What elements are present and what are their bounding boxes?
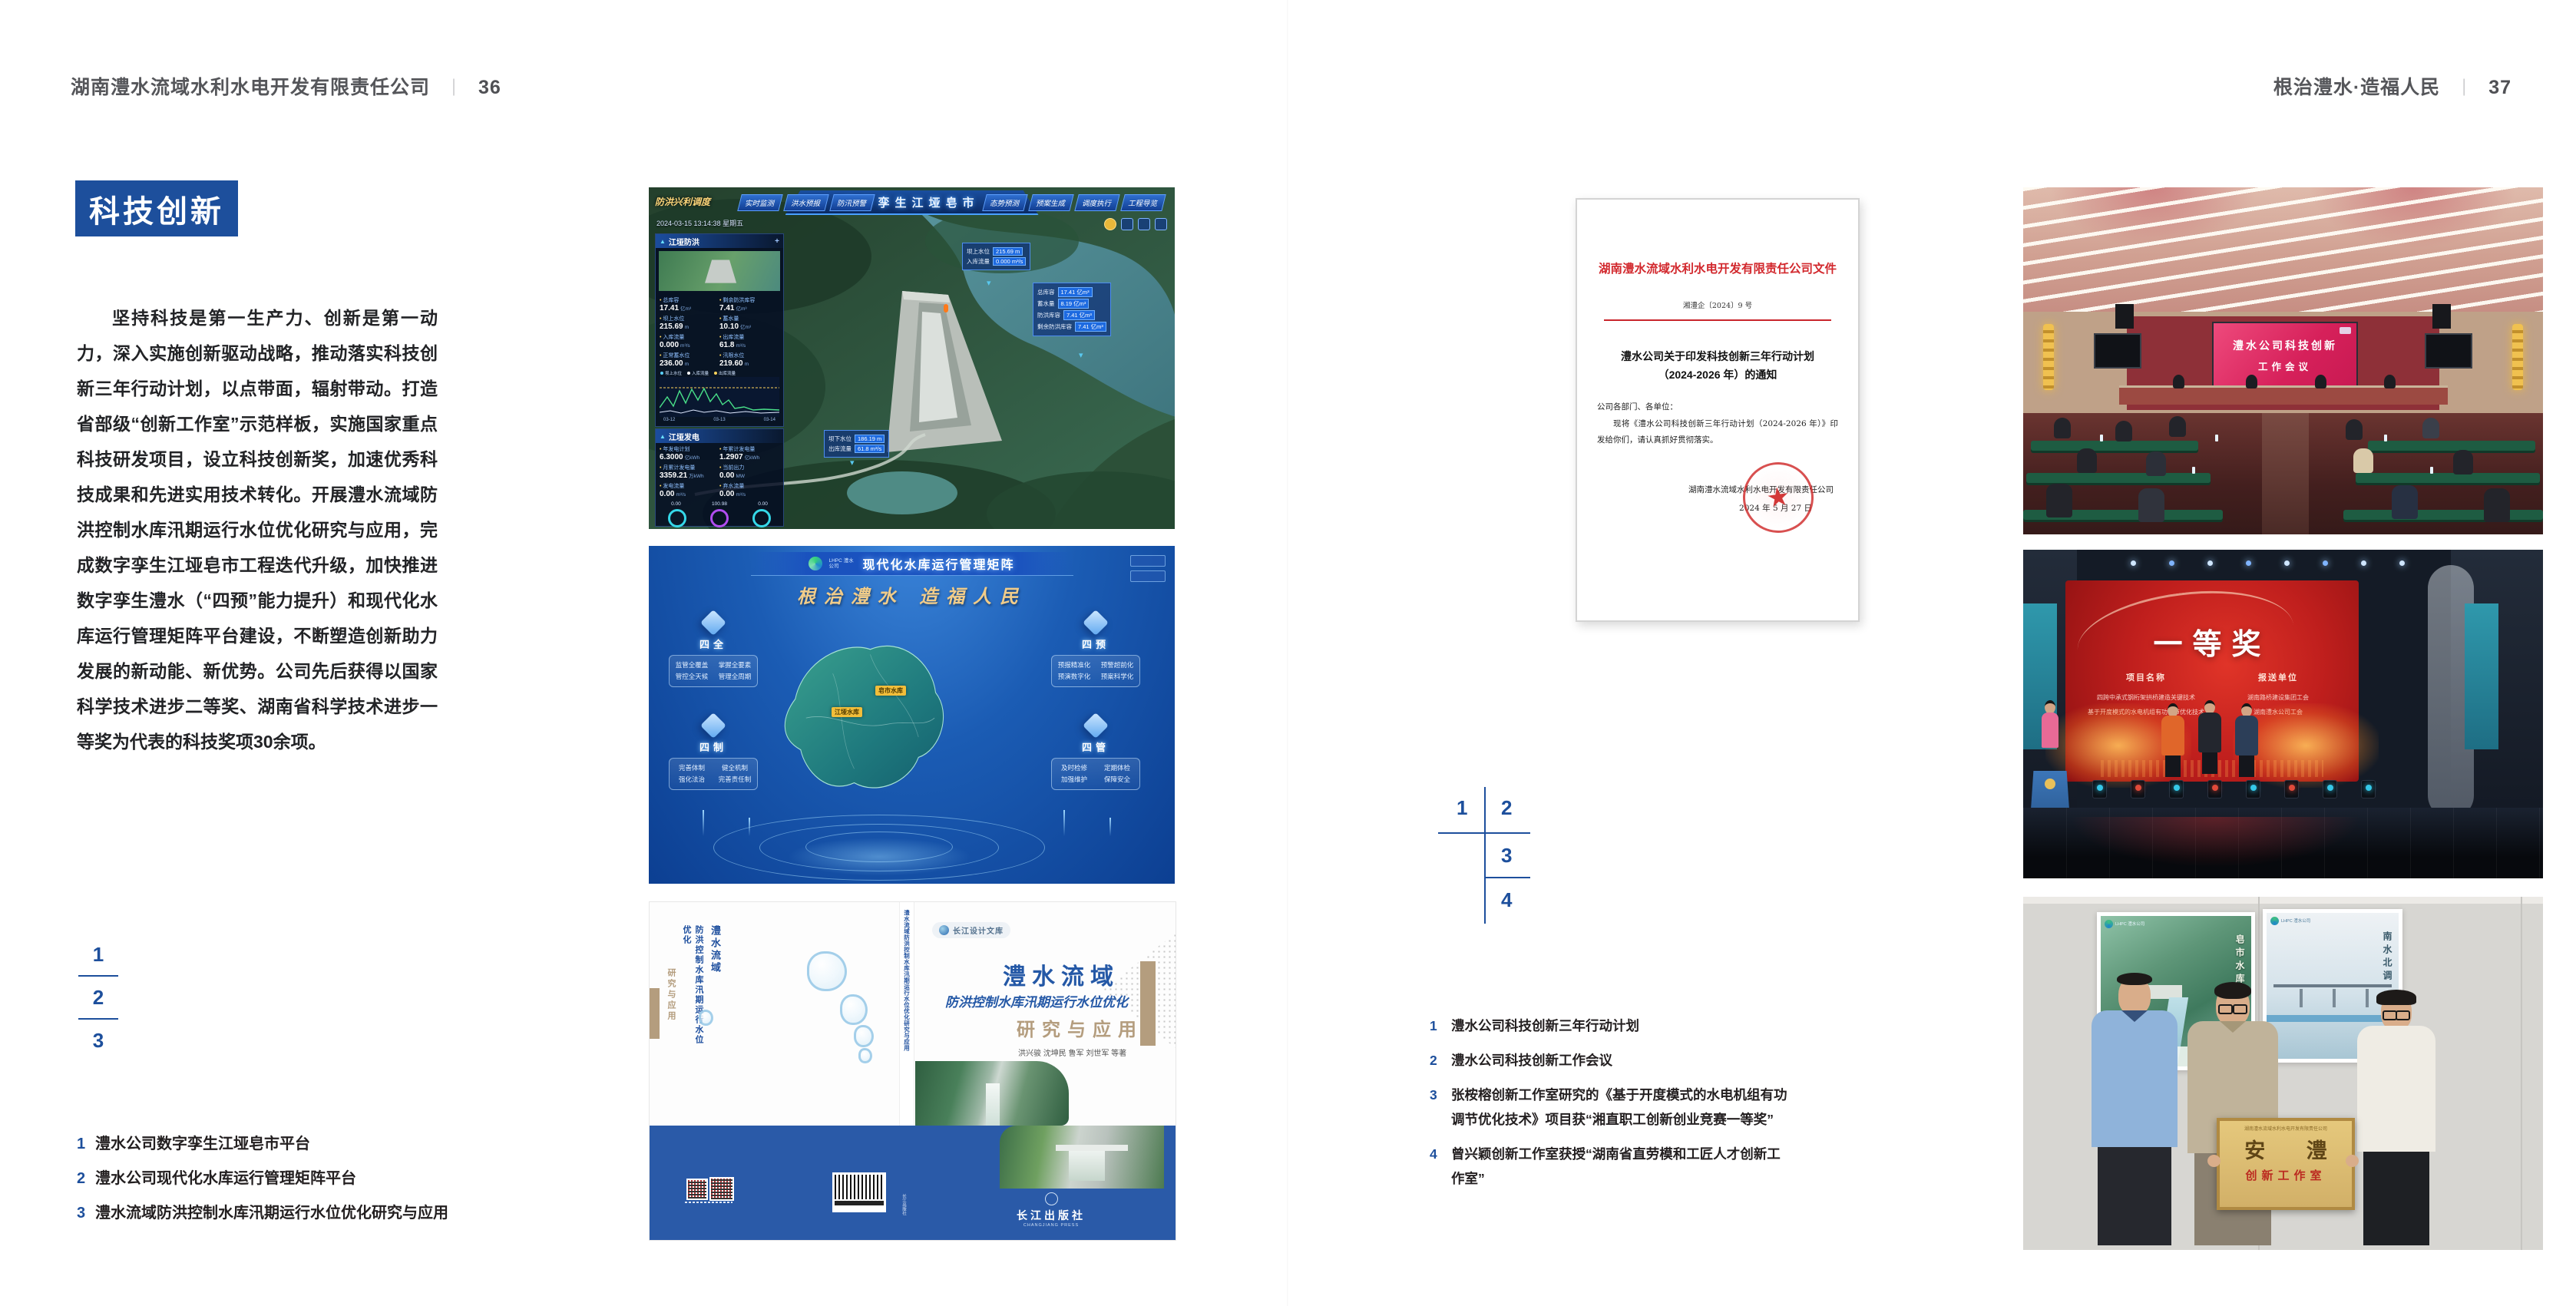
- tooltip-row: 防洪库容7.41 亿m³: [1037, 310, 1106, 320]
- expand-icon: +: [775, 237, 779, 246]
- tooltip-reservoir: 总库容17.41 亿m³蓄水量8.19 亿m³防洪库容7.41 亿m³剩余防洪库…: [1033, 283, 1111, 336]
- caption-text: 澧水流域防洪控制水库汛期运行水位优化研究与应用: [95, 1204, 448, 1223]
- gauge-value: 100.98: [712, 501, 727, 507]
- water-level-chart: [660, 377, 779, 417]
- rostrum-table: [2119, 385, 2448, 405]
- stat-value-row: 0.000m³/s: [660, 341, 719, 349]
- tooltip-value: 17.41 亿m³: [1058, 287, 1093, 297]
- stat-value: 3359.21: [660, 471, 687, 480]
- caption-text: 澧水公司科技创新工作会议: [1451, 1048, 1612, 1073]
- stat-item: 出库流量 61.8m³/s: [719, 333, 779, 349]
- caption-row: 3 张桉榕创新工作室研究的《基于开度模式的水电机组有功调节优化技术》项目获“湘直…: [1430, 1083, 1794, 1132]
- page-gutter: [1287, 0, 1288, 1306]
- stat-label: 月累计发电量: [660, 464, 719, 471]
- marker-divider: [78, 975, 118, 977]
- stage-spotlight: [2207, 780, 2222, 798]
- panel-header-icon: ▲: [660, 238, 666, 245]
- audience-person: [2054, 418, 2071, 438]
- man-blue-polo: [2088, 977, 2181, 1245]
- panel-items: 预报精准化预警超前化预演数字化预案科学化: [1051, 655, 1140, 687]
- poster-vertical-label: 南水北调: [2381, 931, 2394, 984]
- panel-diamond-icon: [700, 713, 726, 739]
- lhpc-logo-icon: [2270, 917, 2279, 925]
- stat-item: 入库流量 0.000m³/s: [660, 333, 719, 349]
- hand: [2207, 1155, 2221, 1167]
- figure-marker-map: 1 2 3 4: [1438, 787, 1530, 925]
- audience-person: [2046, 484, 2072, 517]
- tooltip-upstream: 坝上水位215.69 m入库流量0.000 m³/s: [962, 243, 1030, 270]
- glasses-icon: [2218, 1004, 2233, 1014]
- panel-item: 健全机制: [713, 762, 756, 774]
- stat-unit: 亿kWh: [685, 455, 700, 461]
- caption-text: 张桉榕创新工作室研究的《基于开度模式的水电机组有功调节优化技术》项目获“湘直职工…: [1451, 1083, 1794, 1132]
- stat-label: 弃水流量: [719, 482, 779, 490]
- bridge-pier-shape: [2333, 989, 2336, 1007]
- caption-number: 3: [1430, 1083, 1451, 1132]
- gauge-ring-icon: [668, 509, 686, 527]
- audience-person: [2146, 451, 2166, 476]
- spotlight-lens-icon: [2289, 785, 2295, 791]
- yellow-lamp: [2512, 324, 2523, 390]
- spotlight-lens-icon: [2250, 785, 2257, 791]
- legend-item: 出库流量: [714, 370, 736, 376]
- poster-logo: LHPC 澧水公司: [2105, 920, 2144, 928]
- flood-control-panel: ▲ 江垭防洪 + 总库容 17.41亿m³ 剩余防洪库容: [655, 233, 784, 427]
- person-body: [2357, 1026, 2435, 1152]
- back-title-accent: 研究与应用: [665, 968, 677, 1048]
- tooltip-downstream: 坝下水位186.19 m出库流量61.8 m³/s: [824, 430, 889, 458]
- dashboard-tab: 工程导览: [1120, 194, 1166, 211]
- panel-item: 完善体制: [670, 762, 713, 774]
- gauge-ring-icon: [710, 509, 729, 527]
- panel-item: 预警超前化: [1096, 660, 1139, 671]
- dashboard-icon-row: [1104, 218, 1167, 230]
- x-tick: 03-12: [663, 418, 675, 422]
- stat-item: 汛限水位 219.60m: [719, 352, 779, 368]
- tooltip-label: 剩余防洪库容: [1037, 322, 1072, 331]
- side-tv-screen: [2094, 333, 2141, 369]
- imprint-logo-icon: [939, 925, 949, 935]
- body-paragraph: 坚持科技是第一生产力、创新是第一动力，深入实施创新驱动战略，推动落实科技创新三年…: [77, 300, 438, 759]
- panel-header: ▲ 江垭发电: [656, 429, 783, 443]
- map-label-jiangya: 江垭水库: [832, 707, 862, 717]
- tooltip-row: 坝上水位215.69 m: [967, 247, 1026, 256]
- tooltip-value: 61.8 m³/s: [855, 445, 885, 453]
- mini-dam-shape: [705, 260, 736, 283]
- host-pink-dress: [2042, 700, 2058, 748]
- tooltip-value: 186.19 m: [855, 435, 885, 443]
- stat-item: 年累计发电量 1.2907亿kWh: [719, 445, 779, 461]
- stat-unit: m³/s: [736, 343, 746, 349]
- stat-item: 年发电计划 6.3000亿kWh: [660, 445, 719, 461]
- glasses-icon: [2396, 1010, 2410, 1020]
- matrix-slogan: 根治澧水 造福人民: [797, 581, 1027, 608]
- tooltip-value: 7.41 亿m³: [1063, 310, 1095, 320]
- light-pillar: [1063, 810, 1065, 836]
- stage-spotlight: [2169, 780, 2184, 798]
- water-droplet: [858, 1048, 872, 1063]
- stat-value: 10.10: [719, 322, 739, 331]
- caption-list-right: 1 澧水公司科技创新三年行动计划 2 澧水公司科技创新工作会议 3 张桉榕创新工…: [1430, 1013, 1794, 1201]
- gauge-value: 0.00: [758, 501, 768, 507]
- dam-thumbnail: [659, 251, 780, 291]
- floor-reflection: [2069, 817, 2361, 868]
- poster-logo: LHPC 澧水公司: [2270, 917, 2310, 925]
- stat-item: 正常蓄水位 236.00m: [660, 352, 719, 368]
- hand: [2346, 1155, 2359, 1167]
- dashboard-tabs-left: 实时监测洪水预报防汛预警: [739, 194, 873, 211]
- dashboard-tab: 调度执行: [1074, 194, 1120, 211]
- person-legs: [2239, 755, 2254, 777]
- figure-digital-twin-platform: 防洪兴利调度 数字孪生江垭皂市 实时监测洪水预报防汛预警 态势预测预案生成调度执…: [649, 187, 1175, 529]
- document-number: 湘澧企〔2024〕9 号: [1597, 299, 1838, 310]
- figure-marker-4: 4: [1501, 888, 1512, 912]
- tooltip-label: 入库流量: [967, 257, 990, 266]
- tooltip-arrow-icon: ▾: [987, 278, 991, 288]
- panel-item: 加强维护: [1053, 774, 1096, 785]
- caption-number: 2: [77, 1169, 95, 1189]
- audience-person: [2077, 448, 2097, 473]
- legend-label: 出库流量: [719, 372, 736, 376]
- book-title-main: 澧水流域: [1003, 957, 1176, 991]
- stat-unit: m³/s: [676, 492, 686, 498]
- legend-label: 坝上水位: [665, 372, 682, 376]
- tooltip-arrow-icon: ▾: [850, 458, 855, 468]
- stat-value: 0.00: [719, 471, 734, 480]
- panelist-silhouette: [2173, 375, 2184, 388]
- spine-publisher: 长江出版社: [901, 1194, 907, 1215]
- gauge-values: 0.00100.980.00: [656, 501, 783, 507]
- panel-items: 监管全覆盖掌握全要素管控全天候管理全周期: [669, 655, 758, 687]
- dashboard-tab: 洪水预报: [783, 194, 829, 211]
- winner-navy-uniform: [2235, 703, 2258, 777]
- x-tick: 03-13: [713, 418, 725, 422]
- caption-text: 澧水公司现代化水库运行管理矩阵平台: [95, 1169, 356, 1189]
- figure-official-document: 湖南澧水流域水利水电开发有限责任公司文件 湘澧企〔2024〕9 号 澧水公司关于…: [1576, 198, 1860, 622]
- document-red-header: 湖南澧水流域水利水电开发有限责任公司文件: [1597, 260, 1838, 276]
- tooltip-row: 坝下水位186.19 m: [828, 435, 885, 443]
- back-title-main: 澧水流域: [708, 925, 723, 1048]
- panel-item: 及时检修: [1053, 762, 1096, 774]
- stat-value-row: 3359.21万kWh: [660, 471, 719, 480]
- stage-light-icon: [2323, 560, 2328, 566]
- stat-unit: MW: [736, 474, 745, 479]
- water-bottle: [2215, 435, 2218, 441]
- caption-number: 3: [77, 1204, 95, 1223]
- book-title-accent: 研究与应用: [1017, 1014, 1143, 1041]
- panel-item: 预演数字化: [1053, 671, 1096, 683]
- tooltip-value: 8.19 亿m³: [1058, 299, 1090, 309]
- stat-unit: m: [685, 362, 689, 367]
- desk-row: [2343, 510, 2543, 520]
- legend-label: 入库流量: [692, 372, 709, 376]
- figure-marker-3: 3: [78, 1029, 118, 1052]
- stat-label: 出库流量: [719, 333, 779, 341]
- matrix-title-bar: LHPC 澧水公司 现代化水库运行管理矩阵: [751, 552, 1073, 576]
- teal-side-screen: [2465, 603, 2498, 749]
- dashboard-timestamp: 2024-03-15 13:14:38 星期五: [656, 218, 743, 228]
- book-spine: 澧水流域防洪控制水库汛期运行水位优化研究与应用: [899, 902, 914, 1126]
- imprint-badge: 长江设计文库: [932, 922, 1010, 938]
- audience-person: [2138, 488, 2164, 522]
- spotlight-lens-icon: [2212, 785, 2218, 791]
- panel-item: 强化法治: [670, 774, 713, 785]
- stat-value: 219.60: [719, 359, 743, 368]
- tooltip-row: 总库容17.41 亿m³: [1037, 287, 1106, 297]
- tooltip-row: 蓄水量8.19 亿m³: [1037, 299, 1106, 309]
- stat-label: 汛限水位: [719, 352, 779, 359]
- stat-item: 弃水流量 0.00m³/s: [719, 482, 779, 498]
- stat-unit: m: [685, 325, 689, 330]
- power-generation-panel: ▲ 江垭发电 年发电计划 6.3000亿kWh 年累计发电量 1.2907亿kW…: [655, 428, 784, 527]
- person-hair: [2117, 973, 2152, 985]
- dashboard-corner-label: 防洪兴利调度: [655, 195, 710, 208]
- stat-label: 年累计发电量: [719, 445, 779, 453]
- chart-legend: 坝上水位 入库流量 出库流量: [656, 369, 783, 376]
- figure-plaque-photo: LHPC 澧水公司 皂市水库 LHPC 澧水公司: [2023, 897, 2543, 1250]
- water-droplet: [699, 1010, 713, 1026]
- imprint-text: 长江设计文库: [953, 924, 1004, 936]
- cover-photo-spillway-dam: [1000, 1126, 1164, 1189]
- person-hair: [2214, 982, 2251, 999]
- stat-value-row: 215.69m: [660, 322, 719, 331]
- audience-person: [2453, 450, 2473, 474]
- person-legs: [2202, 752, 2217, 774]
- qr-code: [686, 1179, 708, 1200]
- lhpc-logo-text: LHPC 澧水公司: [2281, 919, 2310, 924]
- marker-hline: [1438, 832, 1530, 834]
- caption-row: 4 曾兴颖创新工作室获授“湖南省直劳模和工匠人才创新工作室”: [1430, 1142, 1794, 1191]
- seal-star-icon: ★: [1764, 481, 1792, 514]
- publisher-block: 长江出版社 CHANGJIANG PRESS: [1009, 1192, 1093, 1228]
- center-aisle: [2262, 413, 2309, 534]
- panelist-silhouette: [2384, 375, 2396, 388]
- water-droplet: [854, 1025, 874, 1047]
- marker-vline: [1484, 787, 1486, 924]
- shirt-collar: [2220, 1021, 2246, 1033]
- barcode-sub: [835, 1201, 884, 1205]
- back-cover-title: 澧水流域 防洪控制水库汛期运行水位优化 研究与应用: [662, 925, 723, 1048]
- legend-item: 入库流量: [687, 370, 709, 376]
- figure-marker-column: 1 2 3: [78, 943, 118, 1052]
- matrix-toolbar-button: [1130, 570, 1166, 582]
- figure-meeting-photo: 澧水公司科技创新 工作会议: [2023, 187, 2543, 534]
- caption-list-left: 1 澧水公司数字孪生江垭皂市平台 2 澧水公司现代化水库运行管理矩阵平台 3 澧…: [77, 1135, 448, 1238]
- stat-value: 0.00: [719, 490, 734, 498]
- audience-person: [2346, 419, 2363, 440]
- figure-marker-3: 3: [1501, 844, 1512, 868]
- document-salutation: 公司各部门、各单位：: [1597, 401, 1838, 412]
- dashboard-tab: 防汛预警: [829, 194, 875, 211]
- light-pillar: [703, 810, 704, 836]
- spotlight-lens-icon: [2174, 785, 2180, 791]
- legend-dot: [660, 372, 663, 375]
- panel-item: 完善责任制: [713, 774, 756, 785]
- chart-x-labels: 03-1203-1303-14: [656, 418, 783, 422]
- stage-light-icon: [2169, 560, 2174, 566]
- caption-text: 澧水公司科技创新三年行动计划: [1451, 1013, 1639, 1038]
- stage-light-icon: [2246, 560, 2251, 566]
- gauge-ring-icon: [752, 509, 771, 527]
- stat-value: 6.3000: [660, 453, 683, 461]
- document-title-line2: （2024-2026 年）的通知: [1658, 369, 1777, 381]
- yellow-lamp: [2043, 324, 2054, 390]
- page-number-right: 37: [2488, 77, 2512, 98]
- panel-title: 江垭发电: [669, 431, 699, 442]
- stat-label: 蓄水量: [719, 315, 779, 322]
- audience-person: [2115, 421, 2132, 441]
- stat-unit: 亿m³: [680, 306, 691, 312]
- person-body: [2042, 713, 2058, 748]
- audience-person-tan-coat: [2353, 448, 2373, 473]
- tooltip-label: 蓄水量: [1037, 299, 1055, 308]
- stage-light-icon: [2399, 560, 2405, 566]
- stat-value-row: 0.00m³/s: [660, 490, 719, 498]
- screen-title-line1: 澧水公司科技创新: [2233, 338, 2337, 353]
- stat-item: 发电流量 0.00m³/s: [660, 482, 719, 498]
- unit-gauges: [656, 509, 783, 527]
- podium-emblem-icon: [2045, 779, 2055, 789]
- ripple-ring: [805, 832, 953, 862]
- matrix-panel-sizhi: 四制 完善体制健全机制强化法治完善责任制: [669, 716, 758, 790]
- winner-orange-jacket: [2161, 703, 2184, 777]
- person-legs: [2363, 1152, 2429, 1245]
- caption-text: 澧水公司数字孪生江垭皂市平台: [95, 1135, 310, 1154]
- stage-light-icon: [2284, 560, 2290, 566]
- stat-value: 236.00: [660, 359, 683, 368]
- spillway-shape: [1069, 1151, 1105, 1181]
- stage-light-icon: [2207, 560, 2213, 566]
- panel-diamond-icon: [1083, 713, 1109, 739]
- water-bottle: [2100, 435, 2103, 441]
- stat-value-row: 61.8m³/s: [719, 341, 779, 349]
- panel-item: 预案科学化: [1096, 671, 1139, 683]
- weather-icon: [1104, 218, 1116, 230]
- stat-unit: 亿kWh: [745, 455, 760, 461]
- alert-icon: [1155, 218, 1167, 230]
- publisher-name: 长江出版社: [1009, 1208, 1093, 1223]
- lhpc-logo-icon: [809, 557, 822, 570]
- figure-book-cover: 澧水流域 防洪控制水库汛期运行水位优化 研究与应用 澧水流域防洪控制水库汛期运行…: [649, 901, 1176, 1241]
- slogan-text: 根治澧水·造福人民: [2273, 77, 2440, 98]
- publisher-logo-icon: [1045, 1192, 1058, 1205]
- plaque-subtitle: 创新工作室: [2220, 1167, 2352, 1183]
- panel-item: 管理全周期: [713, 671, 756, 683]
- flood-stats: 总库容 17.41亿m³ 剩余防洪库容 7.41亿m³ 坝上水位 215.69m: [656, 294, 783, 369]
- panel-header-icon: ▲: [660, 433, 666, 440]
- document-title: 澧水公司关于印发科技创新三年行动计划 （2024-2026 年）的通知: [1597, 347, 1838, 384]
- panel-item: 预报精准化: [1053, 660, 1096, 671]
- person-body: [2235, 716, 2258, 755]
- panel-item: 监管全覆盖: [670, 660, 713, 671]
- waterfall-shape: [986, 1083, 1000, 1126]
- tooltip-value: 215.69 m: [993, 247, 1023, 256]
- panel-item: 保障安全: [1096, 774, 1139, 785]
- stat-value-row: 17.41亿m³: [660, 304, 719, 312]
- panel-title: 四预: [1051, 636, 1140, 651]
- stat-value-row: 1.2907亿kWh: [719, 453, 779, 461]
- stat-item: 坝上水位 215.69m: [660, 315, 719, 331]
- person-legs: [2165, 755, 2181, 777]
- caption-row: 3 澧水流域防洪控制水库汛期运行水位优化研究与应用: [77, 1204, 448, 1223]
- stat-value: 17.41: [660, 304, 679, 312]
- stat-value-row: 7.41亿m³: [719, 304, 779, 312]
- person-body: [2092, 1010, 2178, 1147]
- caption-number: 1: [77, 1135, 95, 1154]
- legend-dot: [714, 372, 717, 375]
- marker-divider: [78, 1018, 118, 1020]
- figure-marker-1: 1: [1457, 796, 1467, 820]
- lhpc-logo-text: LHPC 澧水公司: [828, 558, 856, 570]
- tooltip-value: 7.41 亿m³: [1075, 322, 1106, 332]
- person-hair: [2376, 990, 2416, 1005]
- figure-marker-2: 2: [1501, 796, 1512, 820]
- tooltip-label: 防洪库容: [1037, 311, 1060, 319]
- woman-white-top: [2353, 994, 2439, 1245]
- magazine-spread: 湖南澧水流域水利水电开发有限责任公司｜36 科技创新 坚持科技是第一生产力、创新…: [0, 0, 2576, 1306]
- stat-label: 当前出力: [719, 464, 779, 471]
- header-separator: ｜: [2455, 78, 2473, 98]
- publisher-name-en: CHANGJIANG PRESS: [1009, 1223, 1093, 1228]
- bridge-pier-shape: [2300, 989, 2303, 1007]
- tooltip-label: 出库流量: [828, 445, 852, 453]
- stage-spotlight: [2131, 780, 2145, 798]
- desk-row: [2368, 441, 2535, 451]
- stat-value: 7.41: [719, 304, 734, 312]
- glasses-icon: [2233, 1004, 2247, 1014]
- stat-label: 坝上水位: [660, 315, 719, 322]
- water-droplet: [840, 994, 868, 1025]
- map-label-zaoshi: 皂市水库: [875, 686, 906, 696]
- tooltip-arrow-icon: ▾: [1079, 350, 1083, 360]
- legend-dot: [687, 372, 690, 375]
- stat-unit: 亿m³: [736, 306, 746, 312]
- stat-label: 年发电计划: [660, 445, 719, 453]
- tooltip-label: 总库容: [1037, 288, 1055, 296]
- light-pillar: [1109, 818, 1111, 836]
- caption-number: 4: [1430, 1142, 1451, 1191]
- matrix-panel-siyu: 四预 预报精准化预警超前化预演数字化预案科学化: [1051, 613, 1140, 687]
- back-tan-strip: [650, 988, 660, 1039]
- screen-title-line2: 工作会议: [2258, 359, 2312, 373]
- document-page: 湖南澧水流域水利水电开发有限责任公司文件 湘澧企〔2024〕9 号 澧水公司关于…: [1577, 200, 1858, 514]
- power-stats: 年发电计划 6.3000亿kWh 年累计发电量 1.2907亿kWh 月累计发电…: [656, 443, 783, 500]
- left-running-header: 湖南澧水流域水利水电开发有限责任公司｜36: [71, 72, 501, 100]
- desk-row: [2026, 473, 2211, 483]
- section-title-text: 科技创新: [89, 187, 224, 231]
- person-head: [2216, 986, 2250, 1026]
- red-rule: [1604, 319, 1830, 321]
- caption-row: 2 澧水公司科技创新工作会议: [1430, 1048, 1794, 1073]
- stage-spotlight: [2246, 780, 2260, 798]
- person-head: [2118, 977, 2151, 1015]
- matrix-title: 现代化水库运行管理矩阵: [862, 554, 1014, 573]
- matrix-panel-siquan: 四全 监管全覆盖掌握全要素管控全天候管理全周期: [669, 613, 758, 687]
- locate-icon: [1138, 218, 1150, 230]
- stat-item: 当前出力 0.00MW: [719, 464, 779, 480]
- tooltip-value: 0.000 m³/s: [993, 257, 1026, 266]
- stat-value: 1.2907: [719, 453, 743, 461]
- audience-person: [2484, 488, 2510, 522]
- dashboard-tabs-right: 态势预测预案生成调度执行工程导览: [984, 194, 1164, 211]
- projection-screen: 澧水公司科技创新 工作会议: [2212, 322, 2358, 389]
- lhpc-logo-text: LHPC 澧水公司: [2115, 922, 2144, 927]
- water-bottle: [2430, 467, 2433, 474]
- panel-title: 四制: [669, 739, 758, 754]
- tooltip-row: 入库流量0.000 m³/s: [967, 257, 1026, 266]
- panel-item: 管控全天候: [670, 671, 713, 683]
- figure-marker-1: 1: [78, 943, 118, 966]
